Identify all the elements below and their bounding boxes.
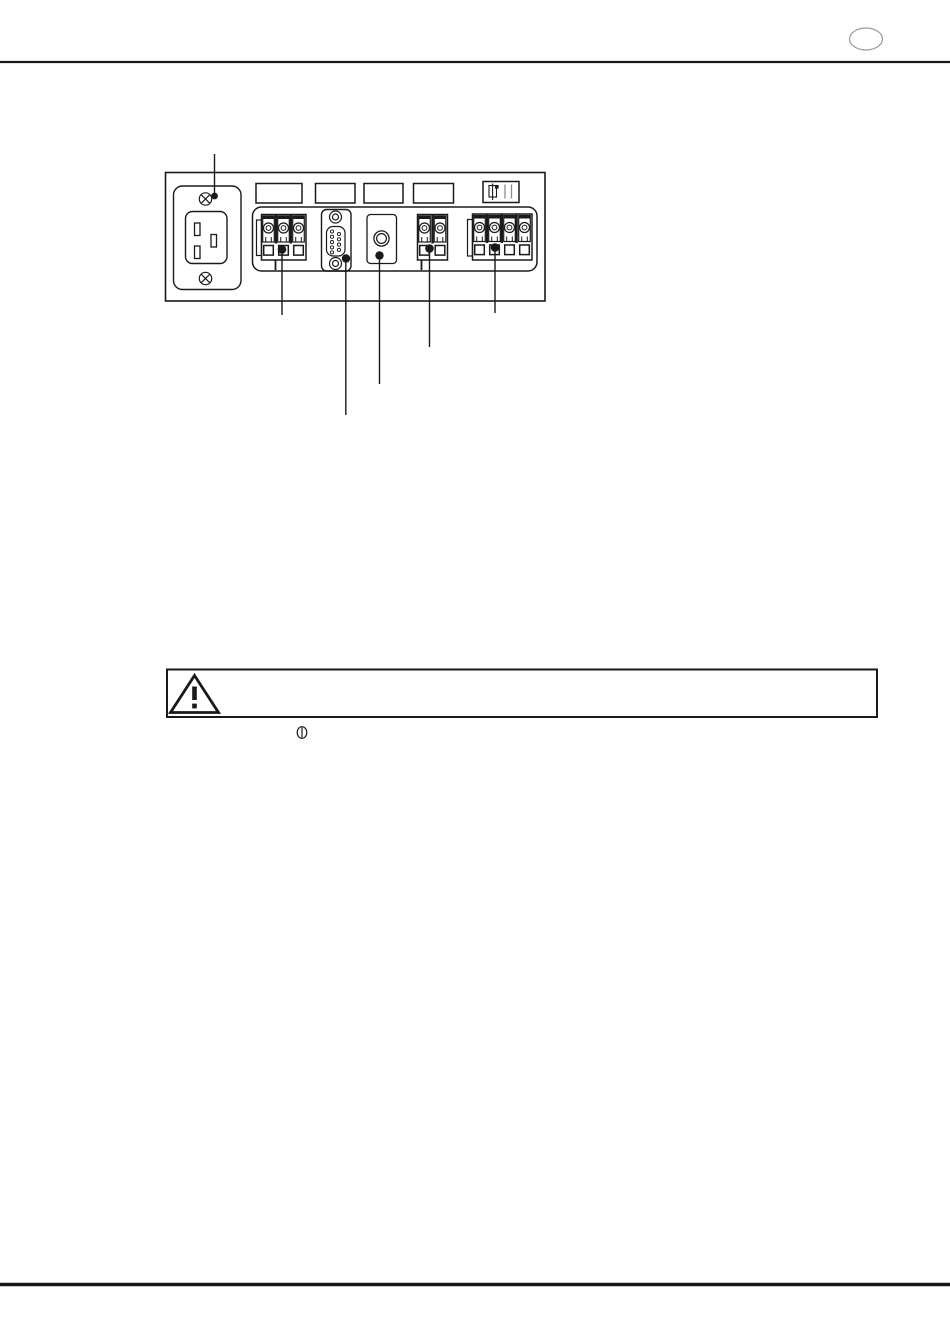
callout-dot-terminal-2pole [425, 244, 434, 253]
db9-serial-connector [322, 210, 352, 272]
label-plate-4 [414, 184, 454, 204]
document-page [0, 0, 950, 1344]
label-plate-2 [316, 184, 356, 204]
screw-bottom-icon [330, 258, 342, 270]
screw-bottom-icon [199, 272, 211, 284]
label-plate-1 [256, 184, 302, 204]
callout-dot-db9 [342, 254, 350, 262]
terminal-block-3pole [257, 215, 307, 271]
screw-top-icon [199, 193, 211, 205]
callout-dot-terminal-3pole [278, 245, 287, 254]
label-plate-5 [483, 182, 519, 203]
terminal-block-4pole [468, 214, 533, 260]
screw-top-icon [330, 211, 342, 223]
callout-dot-terminal-4pole [491, 243, 500, 252]
warning-triangle-icon [171, 676, 219, 713]
ac-power-inlet [174, 186, 242, 290]
terminal-pole [519, 216, 531, 255]
page-number-oval [850, 28, 883, 50]
rear-panel-figure [166, 154, 546, 415]
inlet-slot-top-left [195, 223, 201, 236]
label-plate-3 [364, 184, 403, 204]
terminal-pole [434, 216, 446, 255]
callout-dot-ac-inlet [211, 193, 218, 200]
terminal-pole [293, 216, 305, 255]
terminal-pole [263, 216, 275, 255]
db9-pins [330, 230, 340, 254]
warning-box [167, 670, 877, 718]
inlet-slot-right [211, 235, 217, 248]
callout-dot-coax [375, 251, 383, 259]
inlet-slot-bottom-left [195, 246, 201, 259]
terminal-block-2pole [418, 215, 448, 271]
power-on-icon [297, 727, 307, 739]
coaxial-connector [367, 215, 397, 264]
terminal-pole [504, 216, 516, 255]
terminal-pole [474, 216, 486, 255]
fuse-rating-icon [489, 184, 512, 201]
